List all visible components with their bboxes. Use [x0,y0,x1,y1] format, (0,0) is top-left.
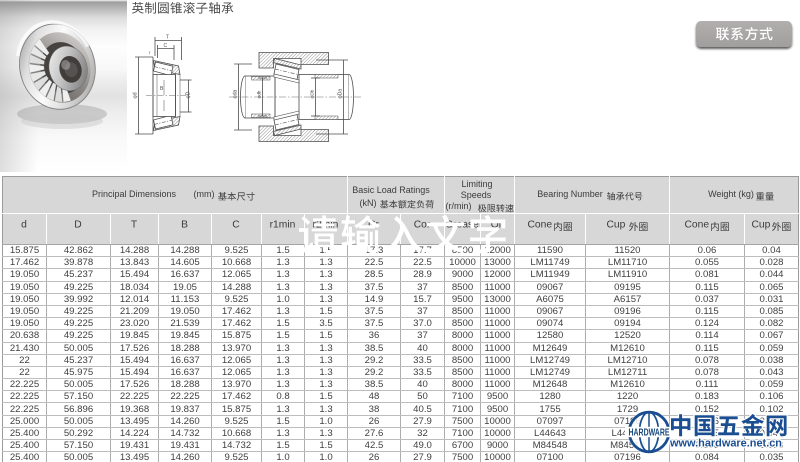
svg-text:φD: φD [186,91,192,98]
svg-text:r: r [149,50,151,55]
svg-text:T: T [166,35,169,41]
svg-text:φd: φd [133,92,139,98]
svg-text:www.hardware.net.cn: www.hardware.net.cn [669,438,782,450]
svg-text:HARDWARE: HARDWARE [629,428,670,439]
svg-text:C: C [164,43,168,49]
